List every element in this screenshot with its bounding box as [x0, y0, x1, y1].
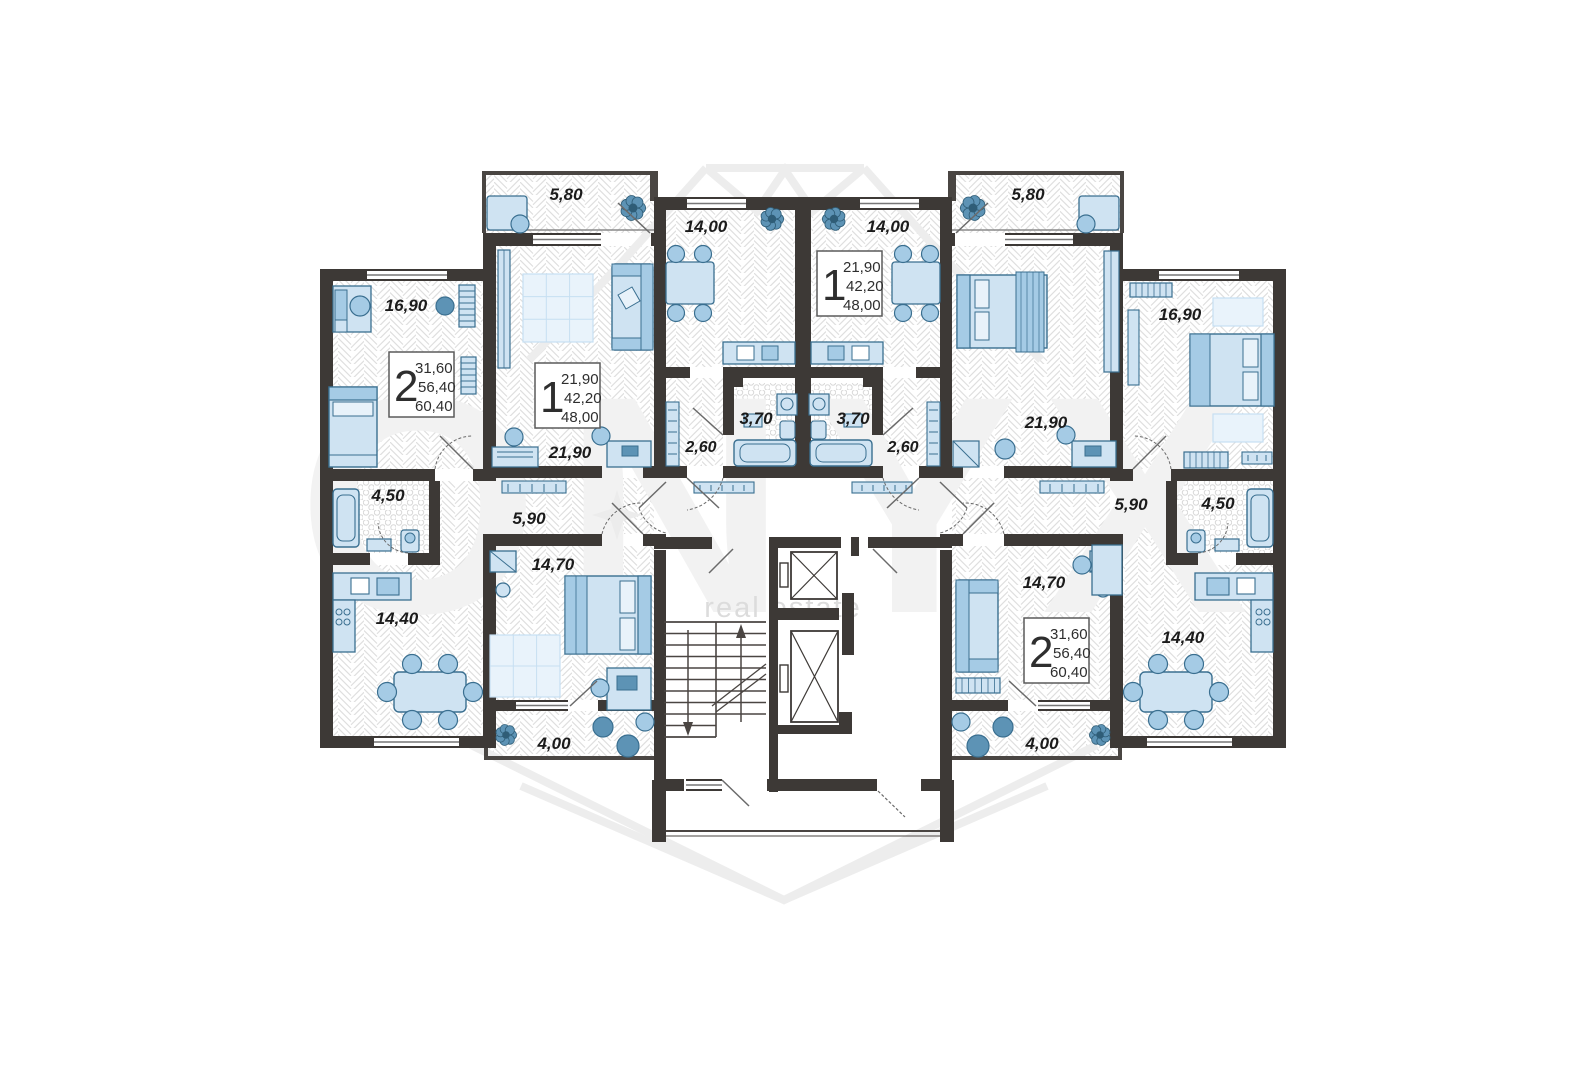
svg-text:14,70: 14,70	[532, 555, 575, 574]
svg-text:4,00: 4,00	[536, 734, 571, 753]
svg-text:31,60: 31,60	[1050, 626, 1088, 643]
svg-text:3,70: 3,70	[836, 409, 870, 428]
svg-text:16,90: 16,90	[385, 296, 428, 315]
svg-text:14,40: 14,40	[1162, 628, 1205, 647]
svg-text:5,90: 5,90	[512, 509, 546, 528]
svg-text:60,40: 60,40	[1050, 664, 1088, 681]
svg-text:21,90: 21,90	[548, 443, 592, 462]
svg-text:21,90: 21,90	[561, 371, 599, 388]
svg-text:48,00: 48,00	[561, 409, 599, 426]
svg-text:14,40: 14,40	[376, 609, 419, 628]
svg-text:31,60: 31,60	[415, 360, 453, 377]
svg-text:14,70: 14,70	[1023, 573, 1066, 592]
svg-text:42,20: 42,20	[846, 278, 884, 295]
svg-text:4,00: 4,00	[1024, 734, 1059, 753]
svg-text:21,90: 21,90	[843, 259, 881, 276]
svg-text:2,60: 2,60	[684, 439, 716, 456]
svg-text:16,90: 16,90	[1159, 305, 1202, 324]
svg-text:42,20: 42,20	[564, 390, 602, 407]
svg-text:48,00: 48,00	[843, 297, 881, 314]
svg-text:2,60: 2,60	[886, 439, 918, 456]
svg-text:21,90: 21,90	[1024, 413, 1068, 432]
svg-text:5,80: 5,80	[1011, 185, 1045, 204]
svg-text:56,40: 56,40	[1053, 645, 1091, 662]
svg-text:60,40: 60,40	[415, 398, 453, 415]
svg-text:4,50: 4,50	[1200, 494, 1235, 513]
svg-text:5,90: 5,90	[1114, 495, 1148, 514]
svg-text:5,80: 5,80	[549, 185, 583, 204]
svg-text:14,00: 14,00	[867, 217, 910, 236]
svg-text:4,50: 4,50	[370, 486, 405, 505]
svg-text:3,70: 3,70	[739, 409, 773, 428]
svg-text:14,00: 14,00	[685, 217, 728, 236]
svg-text:56,40: 56,40	[418, 379, 456, 396]
